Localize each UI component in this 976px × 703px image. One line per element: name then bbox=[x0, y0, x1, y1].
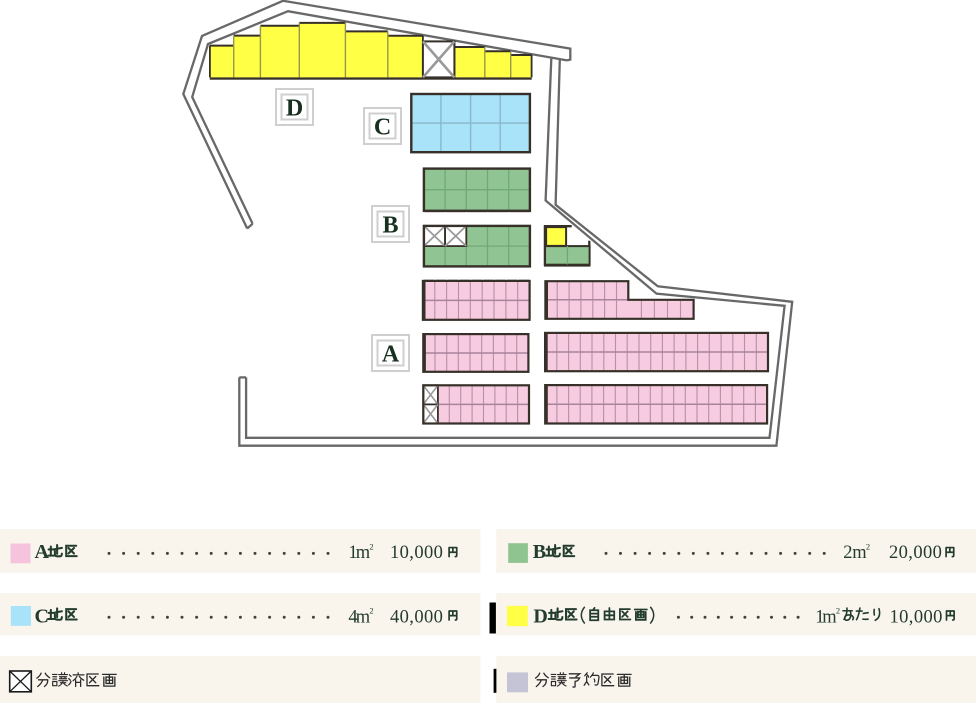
svg-text:2: 2 bbox=[369, 542, 373, 552]
svg-text:C: C bbox=[374, 115, 391, 141]
svg-text:10,000: 10,000 bbox=[390, 543, 443, 563]
svg-text:2: 2 bbox=[836, 606, 840, 616]
svg-text:A: A bbox=[35, 541, 50, 563]
svg-text:2: 2 bbox=[866, 542, 870, 552]
svg-text:2: 2 bbox=[369, 606, 373, 616]
svg-text:C: C bbox=[35, 605, 49, 627]
svg-text:10,000: 10,000 bbox=[890, 607, 943, 627]
svg-text:D: D bbox=[533, 605, 547, 627]
svg-text:A: A bbox=[382, 342, 400, 368]
svg-text:B: B bbox=[533, 541, 546, 563]
svg-text:D: D bbox=[286, 96, 303, 122]
svg-text:20,000: 20,000 bbox=[889, 543, 942, 563]
svg-text:40,000: 40,000 bbox=[390, 607, 443, 627]
svg-text:B: B bbox=[382, 213, 398, 239]
svg-text:2: 2 bbox=[843, 543, 852, 563]
